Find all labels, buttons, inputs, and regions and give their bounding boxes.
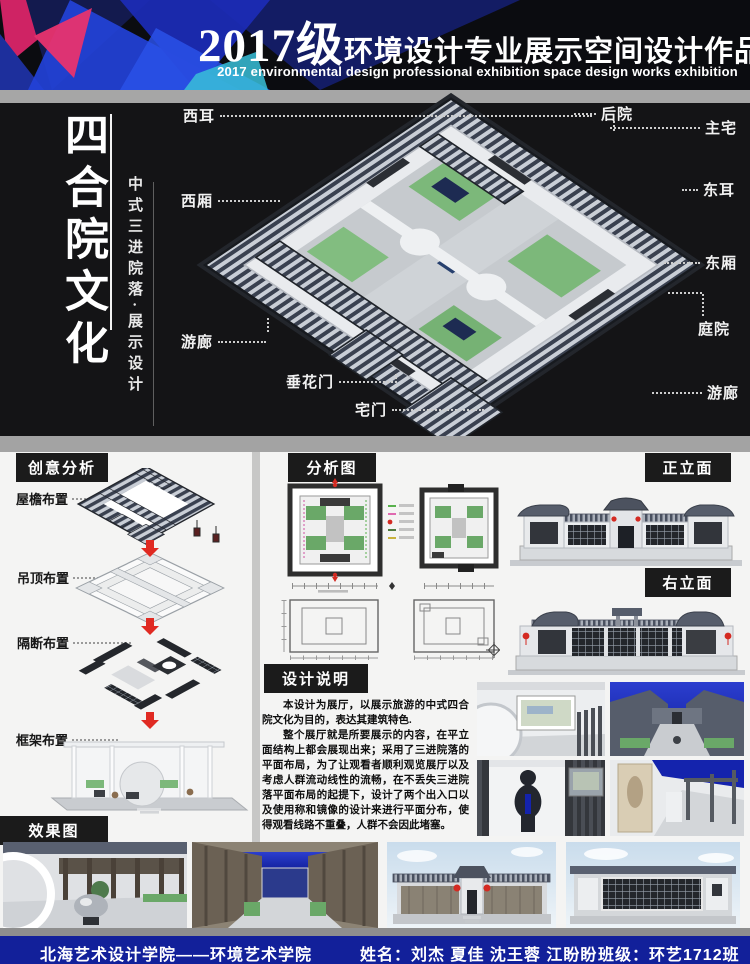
leader-vertical xyxy=(267,318,269,332)
column-gutter xyxy=(252,452,260,842)
diagram-partition-layout xyxy=(46,628,251,716)
lantern-icons xyxy=(194,520,219,542)
down-arrow-icon xyxy=(140,712,160,730)
vertical-divider xyxy=(110,114,112,330)
section-front-elevation: 正立面 xyxy=(645,453,731,482)
floor-plan-diagrams xyxy=(262,478,500,660)
footer-class: 班级：环艺1712班 xyxy=(598,941,740,964)
label-west-ear: 西耳 xyxy=(183,105,592,126)
label-flower-gate: 垂花门 xyxy=(286,371,397,392)
right-elevation-drawing xyxy=(508,596,745,678)
vertical-main-title: 四合院文化 xyxy=(50,112,114,382)
diagram-frame-layout xyxy=(42,720,252,816)
label-main-house: 主宅 xyxy=(610,117,737,138)
section-effect-render: 效果图 xyxy=(0,816,108,845)
section-right-elevation: 右立面 xyxy=(645,568,731,597)
render-courtyard-pot xyxy=(3,842,187,928)
leader-vertical xyxy=(702,294,704,316)
design-notes-p2: 整个展厅就是所要展示的内容，在平立面结构上都会展现出来；采用了三进院落的平面布局… xyxy=(262,728,469,833)
diagram-roof-layout xyxy=(46,468,246,546)
diagram-ceiling-layout xyxy=(50,554,250,624)
plan-legend xyxy=(388,504,414,539)
label-gallery-east: 游廊 xyxy=(652,382,739,403)
section-design-notes: 设计说明 xyxy=(264,664,368,693)
section-divider-band xyxy=(0,436,750,452)
label-gallery-west: 游廊 xyxy=(181,331,266,352)
vertical-sub-title: 中式三进院落·展示设计 xyxy=(124,176,145,426)
footer-divider-band xyxy=(0,928,750,936)
label-east-wing: 东厢 xyxy=(664,252,737,273)
render-vase-doorway xyxy=(477,760,605,836)
render-corridor-axis xyxy=(192,842,378,928)
render-gate-facade xyxy=(387,842,556,928)
label-courtyard: 庭院 xyxy=(698,318,730,339)
render-night-courtyard xyxy=(610,682,744,756)
vertical-divider-thin xyxy=(153,182,154,426)
label-house-gate: 宅门 xyxy=(355,399,484,420)
render-scroll-corridor xyxy=(610,760,744,836)
design-notes-text: 本设计为展厅，以展示旅游的中式四合院文化为目的，表达其建筑特色. 整个展厅就是所… xyxy=(262,698,469,833)
front-elevation-drawing xyxy=(510,482,742,568)
design-notes-p1: 本设计为展厅，以展示旅游的中式四合院文化为目的，表达其建筑特色. xyxy=(262,698,469,728)
render-lattice-facade xyxy=(566,842,740,928)
down-arrow-icon xyxy=(140,618,160,636)
courtyard-3d-model xyxy=(170,92,730,436)
down-arrow-icon xyxy=(140,540,160,558)
label-west-wing: 西厢 xyxy=(181,190,280,211)
poster-subtitle-en: 2017 environmental design professional e… xyxy=(215,64,740,79)
leader-courtyard xyxy=(668,292,702,294)
render-arch-gallery xyxy=(477,682,605,756)
label-east-ear: 东耳 xyxy=(682,179,735,200)
footer-bar: 北海艺术设计学院——环境艺术学院 姓名：刘杰 夏佳 沈王蓉 江盼盼 班级：环艺1… xyxy=(0,936,750,964)
footer-names: 姓名：刘杰 夏佳 沈王蓉 江盼盼 xyxy=(360,941,597,964)
header-banner: 2017级环境设计专业展示空间设计作品展 2017 environmental … xyxy=(0,0,750,90)
footer-school: 北海艺术设计学院——环境艺术学院 xyxy=(40,941,312,964)
poster: 2017级环境设计专业展示空间设计作品展 2017 environmental … xyxy=(0,0,750,964)
